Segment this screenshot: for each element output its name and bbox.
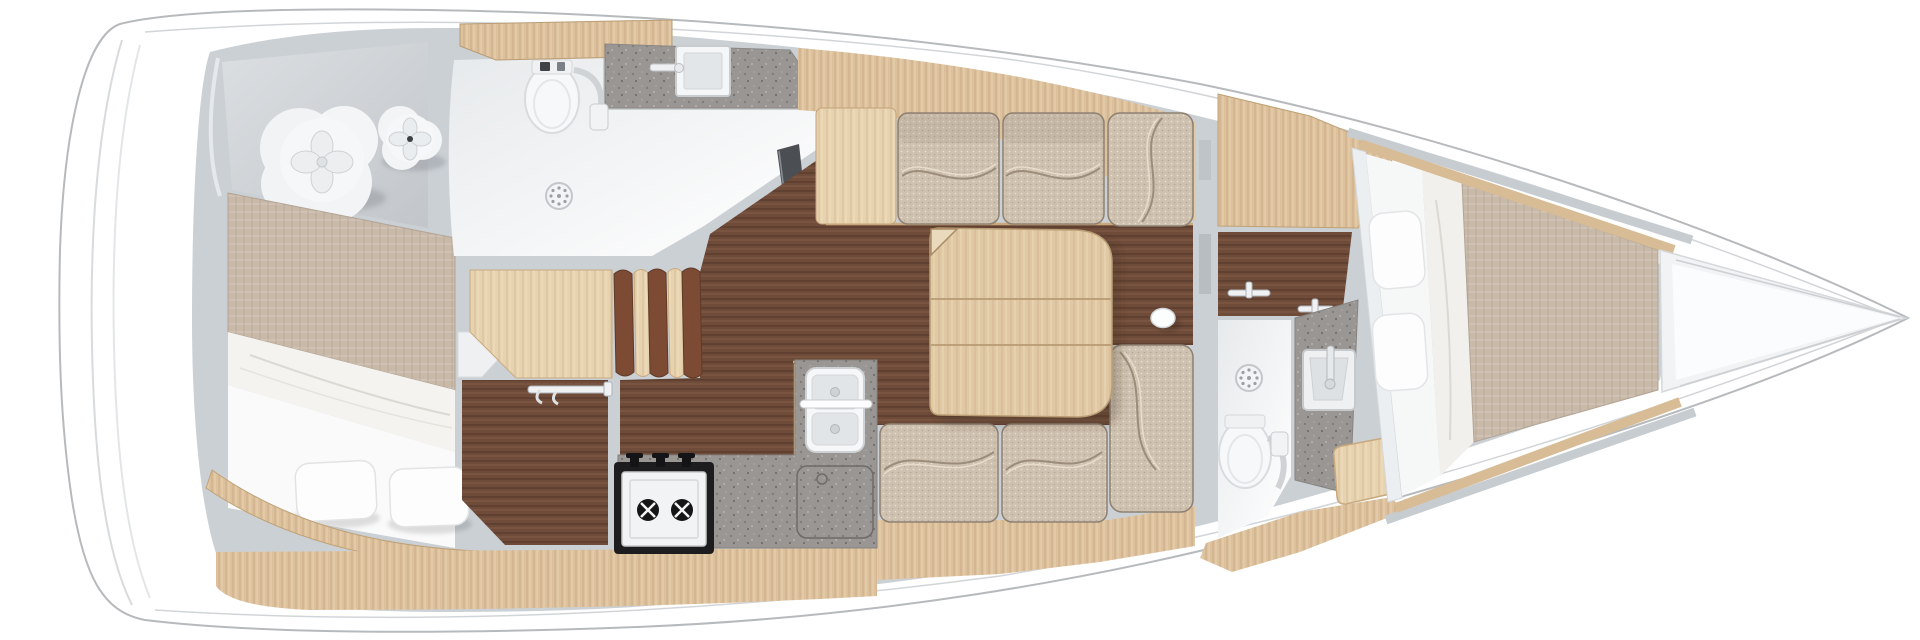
v-berth-pillow: [1371, 312, 1428, 391]
step: [682, 268, 702, 378]
settee-cushion: [898, 113, 999, 224]
faucet-icon: [650, 64, 678, 71]
stove-burner-icon: [637, 499, 659, 521]
clothes-rail: [528, 386, 612, 393]
stove: [614, 453, 714, 554]
fwd-cabin: [1348, 132, 1695, 520]
faucet-icon: [1327, 346, 1334, 382]
bulkhead-door-inset: [1199, 140, 1211, 180]
boat-floorplan: [0, 0, 1920, 640]
settee-cushion: [1003, 113, 1104, 224]
aft-berth-pillow: [389, 467, 469, 528]
step: [614, 270, 634, 376]
faucet-icon: [800, 400, 872, 408]
rail-bracket: [604, 382, 612, 396]
sink-drain-icon: [831, 425, 840, 434]
wardrobe-floor: [462, 380, 608, 545]
sink-drain-icon: [831, 388, 840, 397]
settee-bench: [816, 108, 896, 224]
settee-cushion: [880, 424, 998, 522]
settee-cushion-corner: [1108, 113, 1193, 226]
bulkhead-door-inset: [1199, 234, 1211, 294]
cabinetry-deck-band: [216, 548, 877, 610]
step: [668, 269, 684, 378]
toilet-pump: [1271, 432, 1288, 456]
toilet-pump: [590, 104, 608, 130]
fwd-head-wardrobe-floor: [1218, 232, 1352, 316]
stove-burner-icon: [671, 499, 693, 521]
galley-sink: [800, 368, 872, 452]
fwd-head-sink: [1303, 346, 1355, 410]
settee-cushion: [1002, 424, 1107, 522]
stove-knob-icon: [626, 453, 695, 467]
v-berth-pillow: [1368, 210, 1426, 290]
aft-berth-pillow: [295, 460, 378, 522]
step: [648, 269, 668, 377]
shower-drain-icon: [1236, 365, 1262, 391]
salon-table: [930, 228, 1112, 417]
wardrobe: [462, 380, 612, 545]
settee-cushion-corner: [1110, 345, 1193, 512]
compression-post-cap: [1151, 309, 1175, 328]
shower-drain-icon: [546, 183, 572, 209]
step: [634, 270, 650, 377]
